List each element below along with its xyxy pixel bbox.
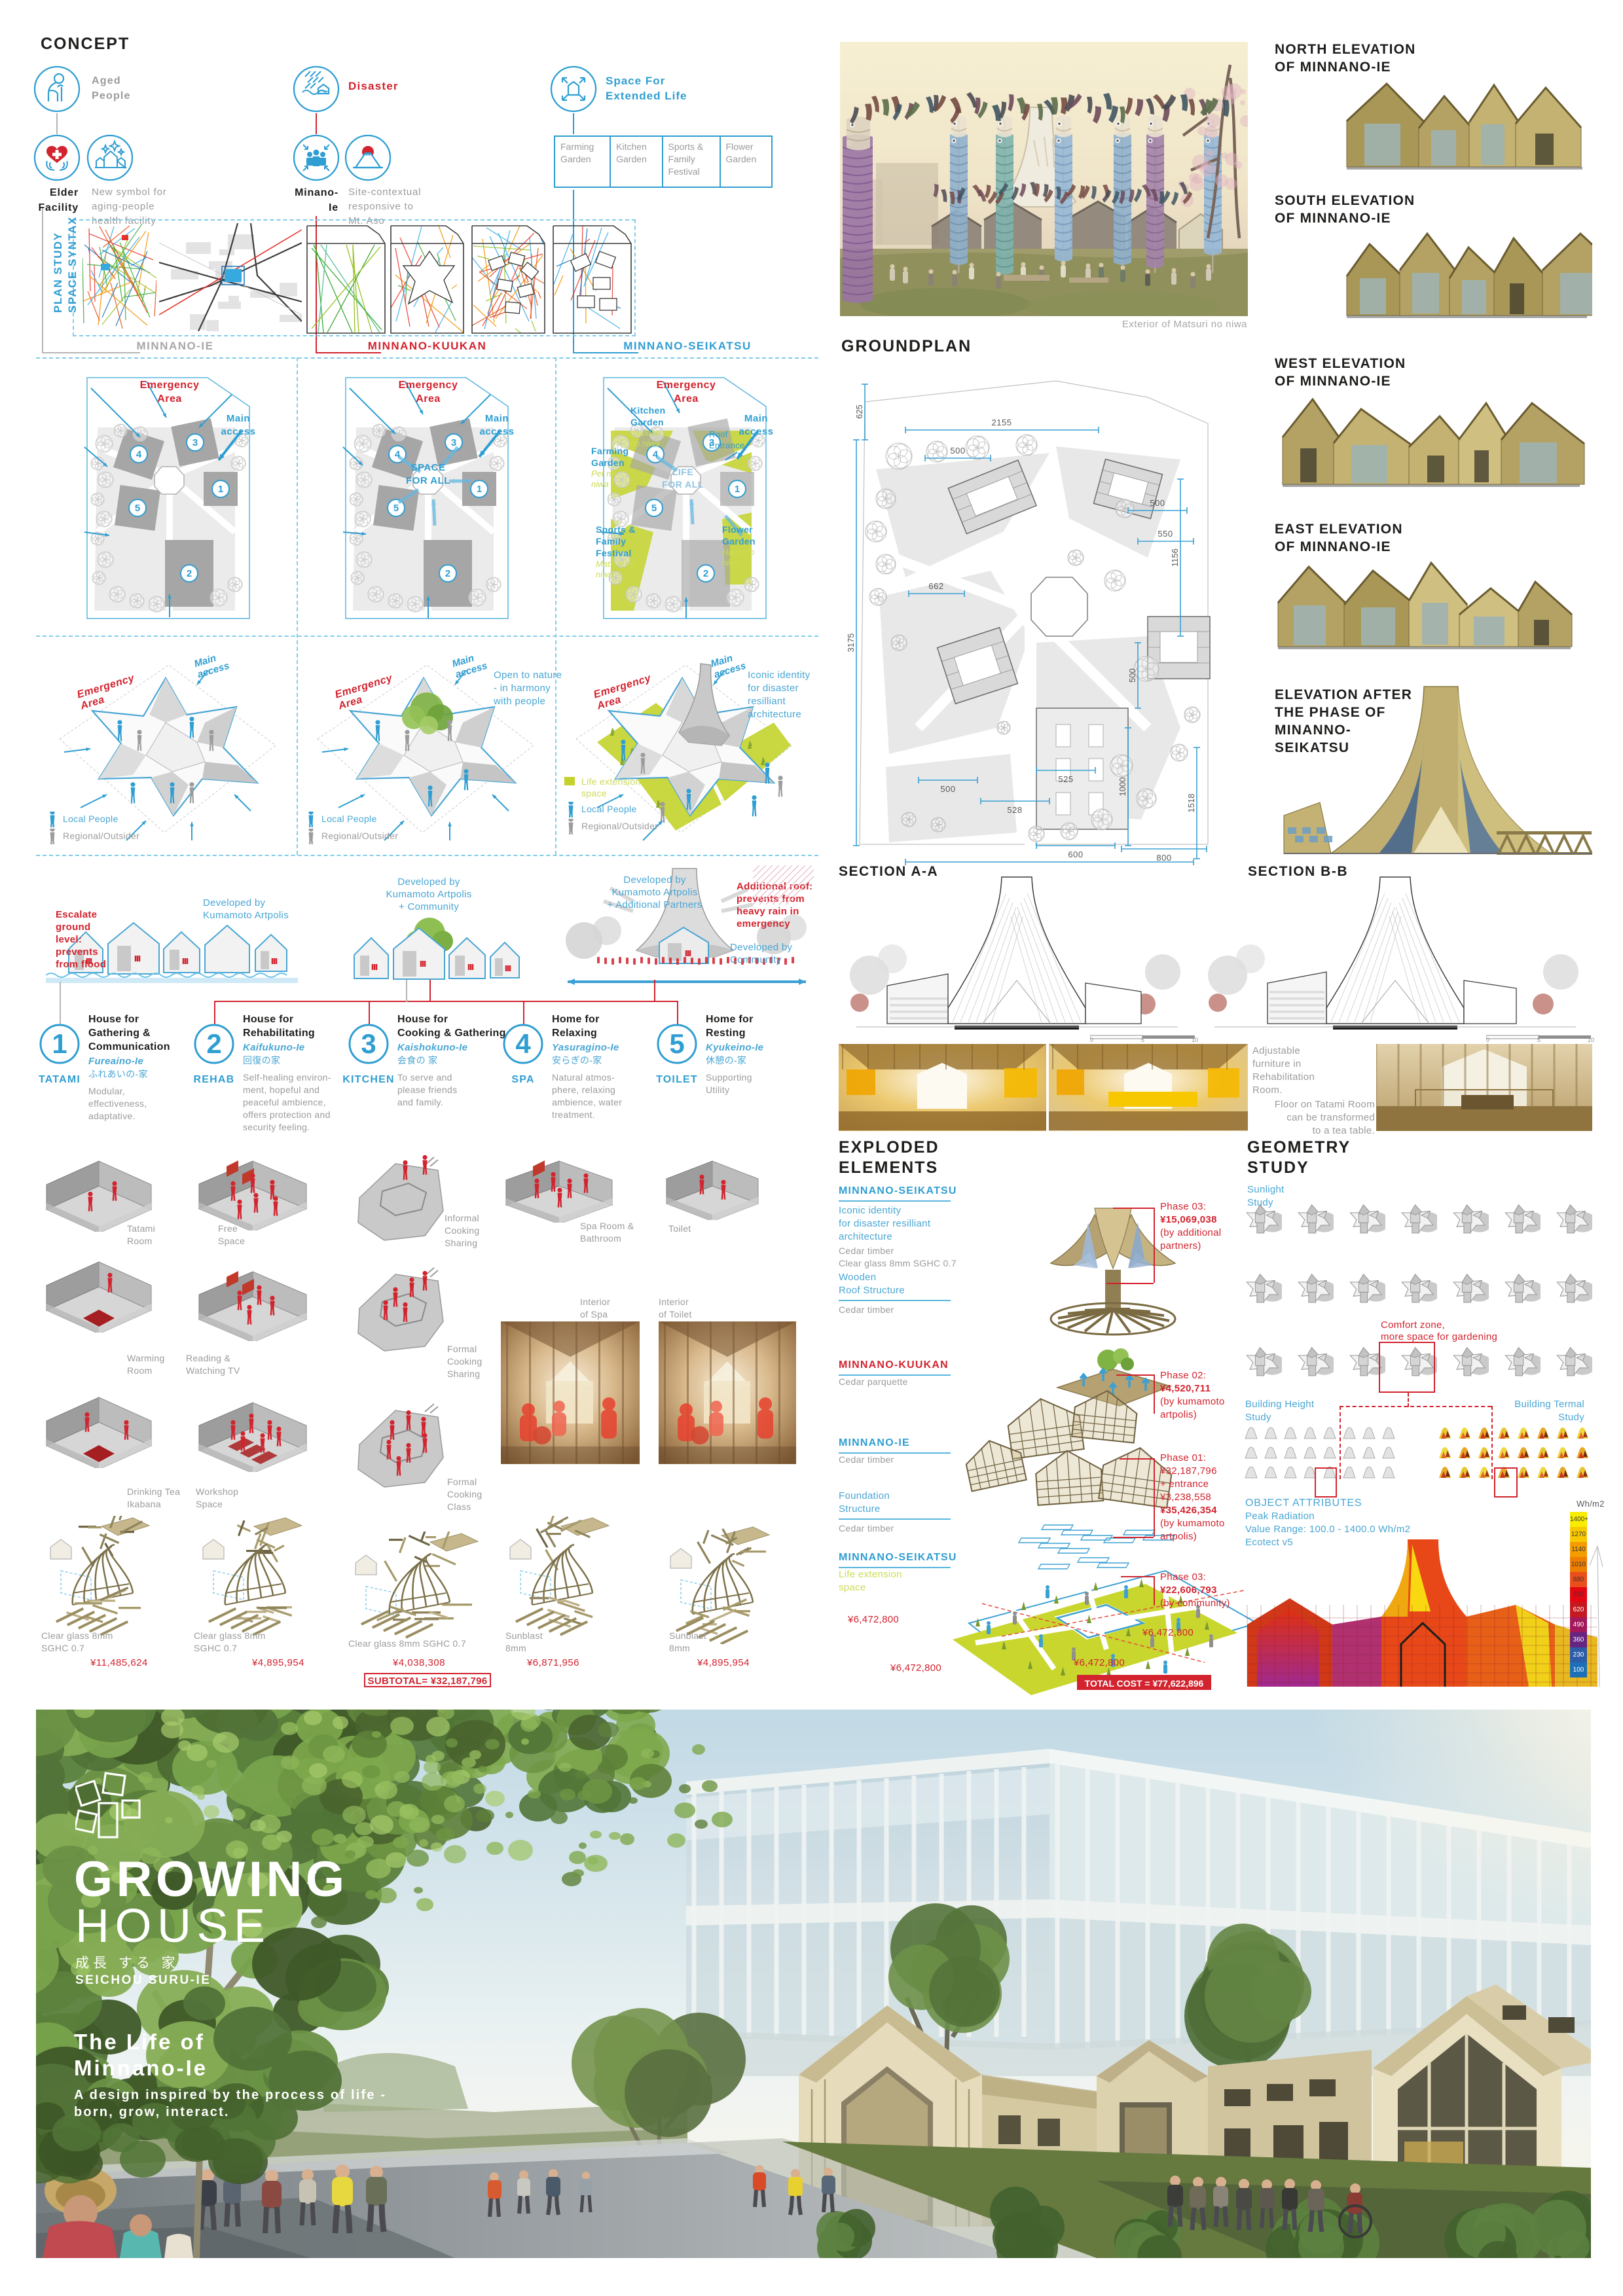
svg-text:500: 500 (1150, 498, 1165, 508)
svg-text:662: 662 (928, 581, 943, 591)
svg-text:528: 528 (1007, 805, 1022, 815)
svg-text:5: 5 (1537, 1037, 1541, 1042)
svg-text:525: 525 (1058, 774, 1073, 784)
svg-text:10: 10 (1588, 1037, 1594, 1042)
svg-text:10: 10 (1192, 1037, 1198, 1042)
svg-text:5: 5 (135, 503, 140, 514)
svg-text:3175: 3175 (846, 634, 856, 653)
svg-text:1: 1 (735, 484, 740, 495)
svg-text:2: 2 (445, 568, 450, 579)
svg-text:3: 3 (451, 437, 456, 448)
svg-text:0: 0 (1090, 1037, 1093, 1042)
svg-text:2: 2 (187, 568, 192, 579)
svg-text:2: 2 (703, 568, 708, 579)
svg-text:5: 5 (651, 503, 657, 514)
svg-text:1: 1 (218, 484, 223, 495)
svg-text:4: 4 (515, 1028, 531, 1059)
svg-text:4: 4 (136, 449, 142, 460)
svg-text:1518: 1518 (1186, 794, 1196, 813)
svg-text:500: 500 (940, 784, 955, 794)
svg-text:1: 1 (52, 1028, 67, 1059)
svg-text:600: 600 (1068, 850, 1083, 859)
svg-text:550: 550 (1158, 529, 1173, 539)
svg-text:2155: 2155 (992, 418, 1012, 427)
svg-text:5: 5 (669, 1028, 684, 1059)
svg-text:1: 1 (477, 484, 482, 495)
svg-text:0: 0 (1486, 1037, 1489, 1042)
svg-text:500: 500 (1127, 668, 1137, 683)
svg-text:5: 5 (393, 503, 399, 514)
svg-text:800: 800 (1156, 853, 1171, 863)
svg-text:2: 2 (206, 1028, 221, 1059)
svg-text:5: 5 (1141, 1037, 1144, 1042)
svg-text:1156: 1156 (1170, 548, 1180, 567)
svg-text:500: 500 (950, 446, 965, 456)
svg-text:1000: 1000 (1118, 778, 1127, 797)
svg-text:3: 3 (192, 437, 198, 448)
svg-text:625: 625 (854, 404, 864, 419)
svg-text:3: 3 (361, 1028, 376, 1059)
